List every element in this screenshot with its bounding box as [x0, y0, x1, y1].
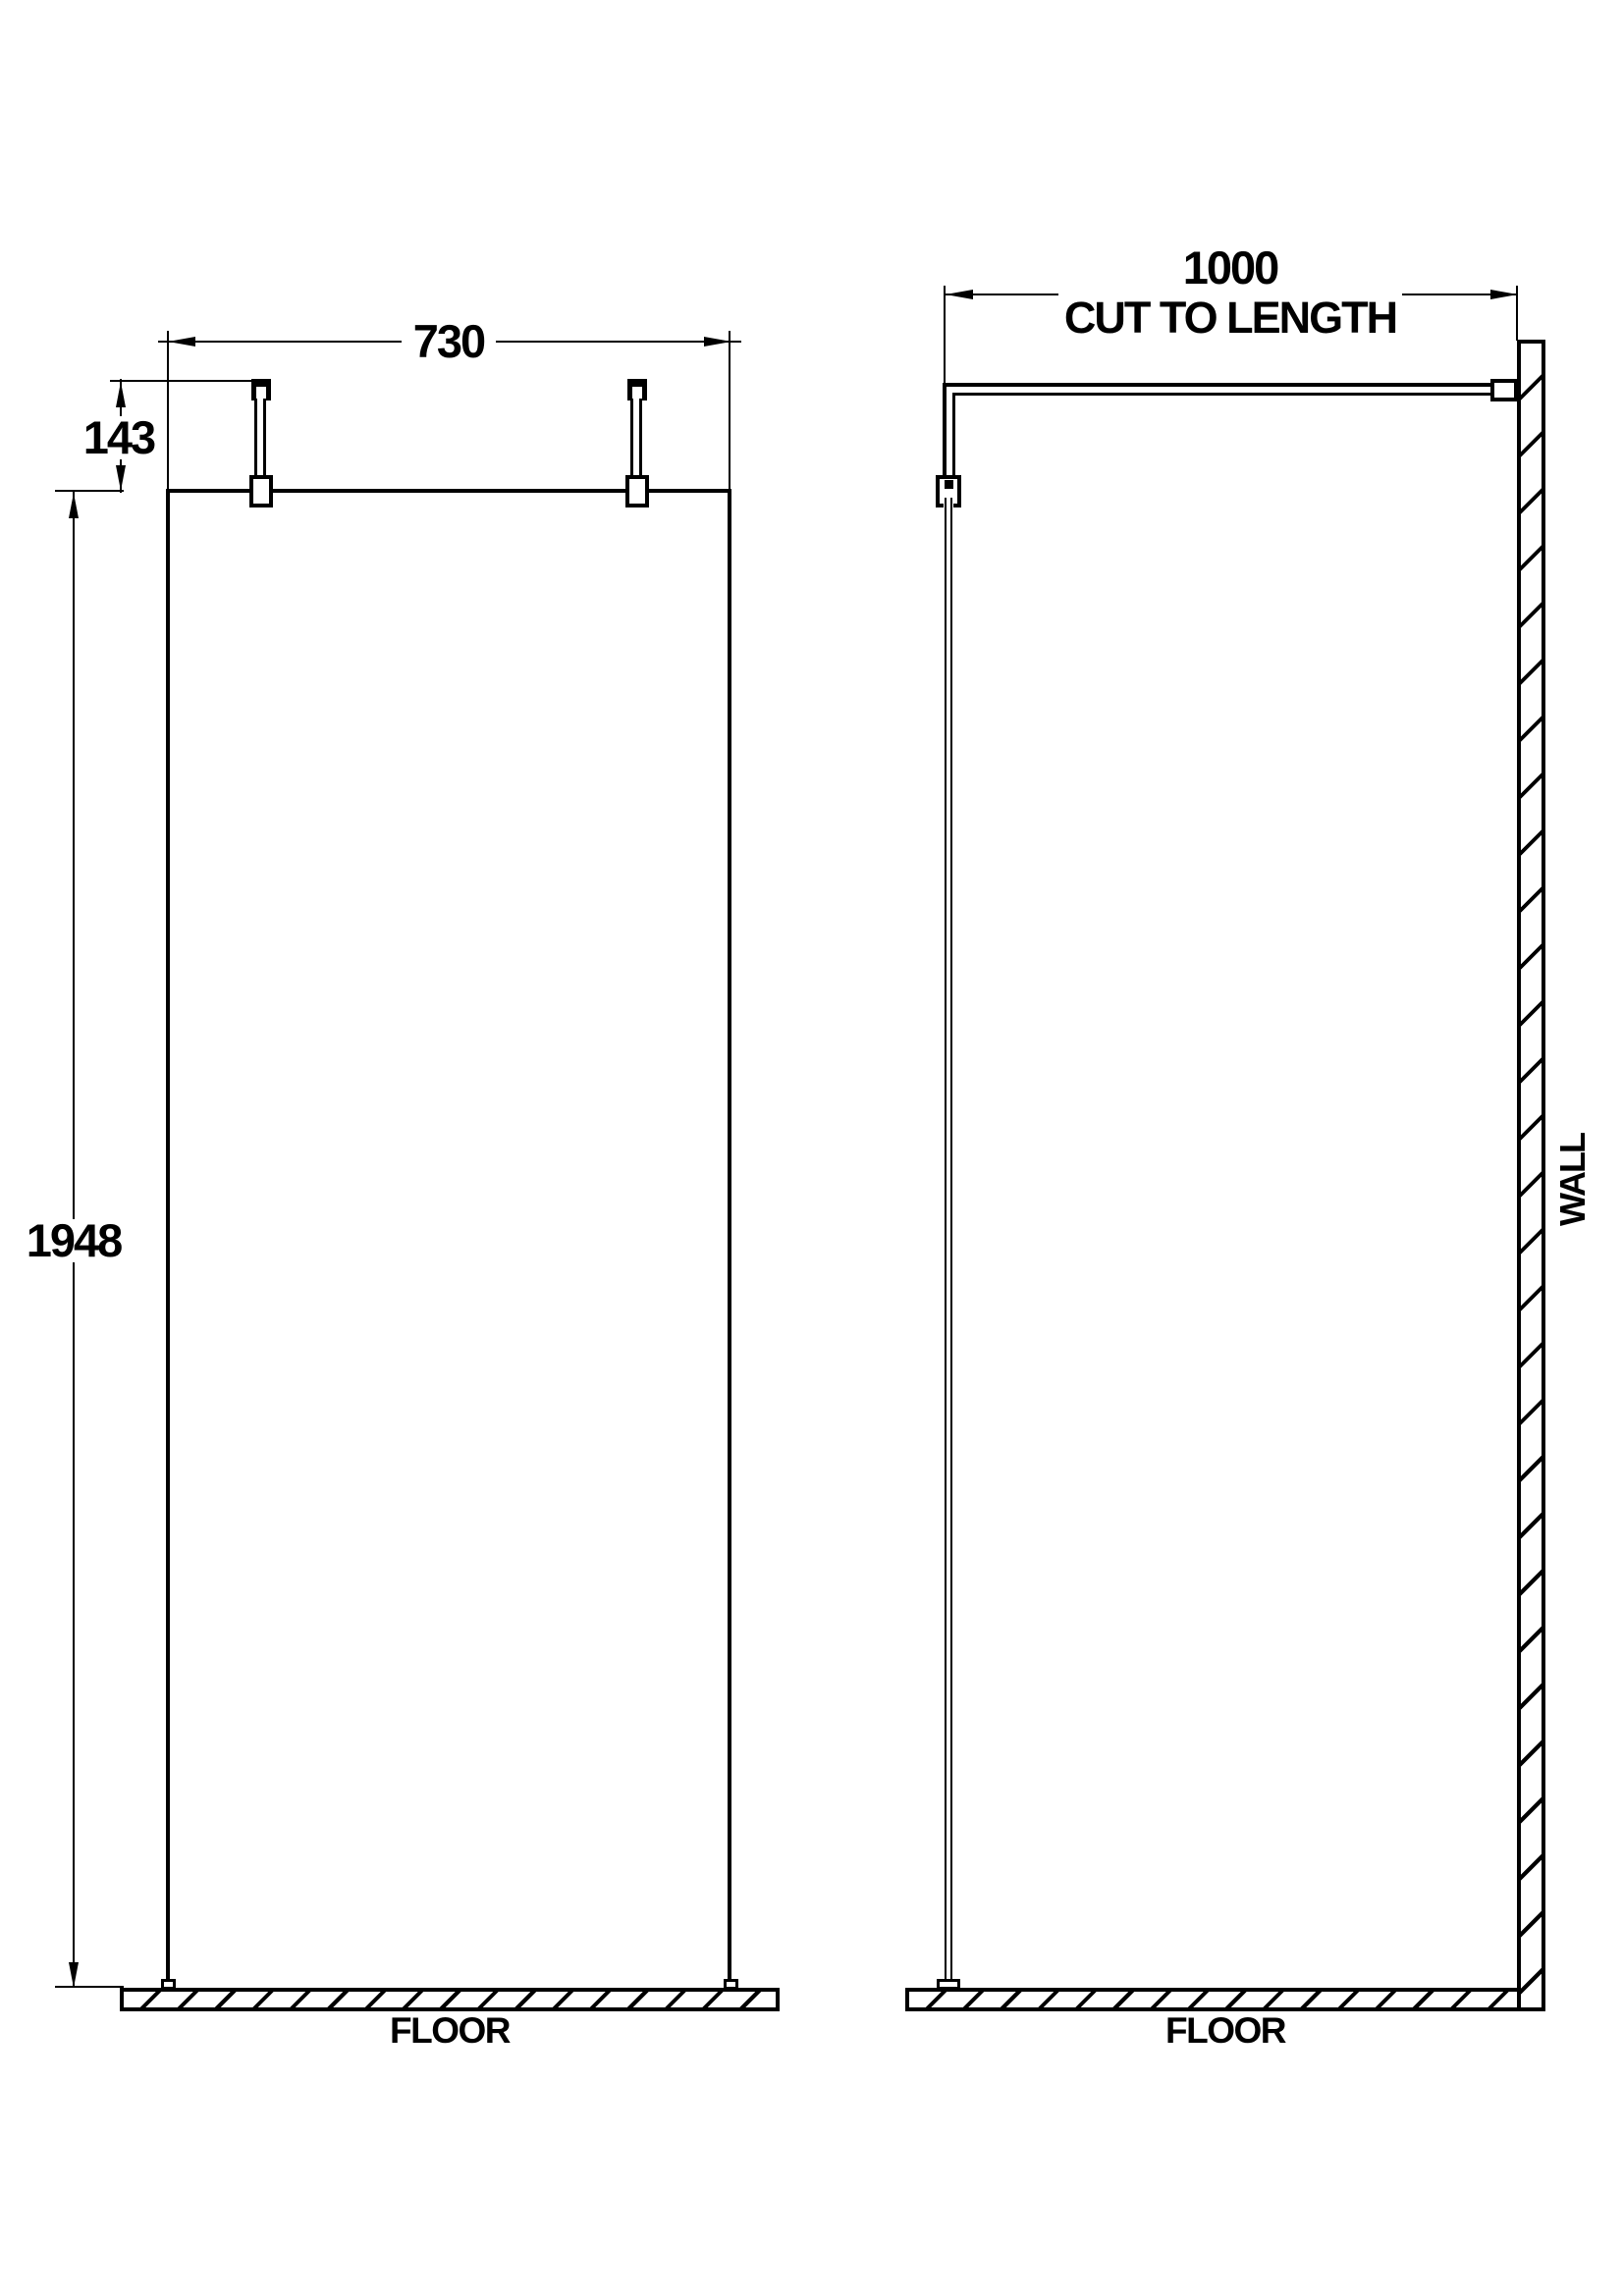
support-post-left-clamp: [249, 475, 273, 507]
dim-143-arrow-up: [116, 382, 126, 407]
floor-label-side: FLOOR: [1127, 2013, 1324, 2049]
wall-hatch: [1517, 340, 1545, 2011]
dim-1000-ext-right: [1516, 286, 1518, 341]
glass-edge-side: [945, 507, 952, 1980]
floor-hatch-side: [905, 1988, 1544, 2011]
wall-bracket: [1490, 379, 1518, 401]
dim-730-label: 730: [402, 320, 496, 363]
glass-foot-right: [724, 1979, 738, 1990]
glass-panel: [166, 489, 731, 1988]
dim-1948-tick-bottom: [55, 1986, 124, 1988]
dim-1000-arrow-left: [946, 290, 973, 299]
dim-730-ext-left: [167, 331, 169, 491]
glass-foot-side: [937, 1979, 960, 1990]
dim-1000-ext-left: [944, 286, 946, 384]
shower-screen-technical-drawing: FLOOR 730 143 1948: [0, 0, 1623, 2296]
glass-foot-left: [161, 1979, 176, 1990]
dim-1000-note-label: CUT TO LENGTH: [1058, 293, 1402, 344]
floor-hatch-front: [120, 1988, 780, 2011]
dim-1000-arrow-right: [1490, 290, 1518, 299]
support-post-right-clamp: [625, 475, 649, 507]
dim-1948-tick-top: [55, 490, 124, 492]
support-post-left-stem: [254, 399, 266, 477]
dim-730-arrow-left: [168, 337, 195, 347]
dim-730-ext-right: [729, 331, 730, 491]
wall-label: WALL: [1553, 1101, 1593, 1258]
dim-1948-arrow-up: [69, 493, 79, 518]
dim-1948-label: 1948: [15, 1219, 133, 1262]
dim-1948-arrow-down: [69, 1962, 79, 1988]
dim-143-arrow-down: [116, 465, 126, 491]
dim-1000-label: 1000: [1159, 246, 1302, 290]
dim-143-tick-top: [110, 380, 253, 382]
glass-clamp-slot-glass: [945, 498, 952, 509]
floor-label-front: FLOOR: [352, 2013, 548, 2049]
support-post-left-cap: [251, 379, 271, 400]
dim-730-arrow-right: [704, 337, 731, 347]
dim-143-label: 143: [75, 416, 163, 459]
glass-clamp-screw: [945, 480, 953, 489]
support-post-right-stem: [630, 399, 642, 477]
support-post-right-cap: [627, 379, 647, 400]
support-arm-inner: [952, 393, 1492, 477]
